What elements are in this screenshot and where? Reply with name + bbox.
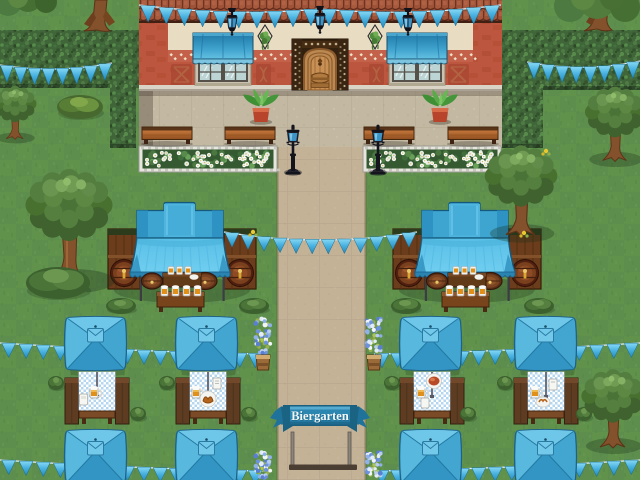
svg-text:Biergarten: Biergarten [291,409,349,423]
